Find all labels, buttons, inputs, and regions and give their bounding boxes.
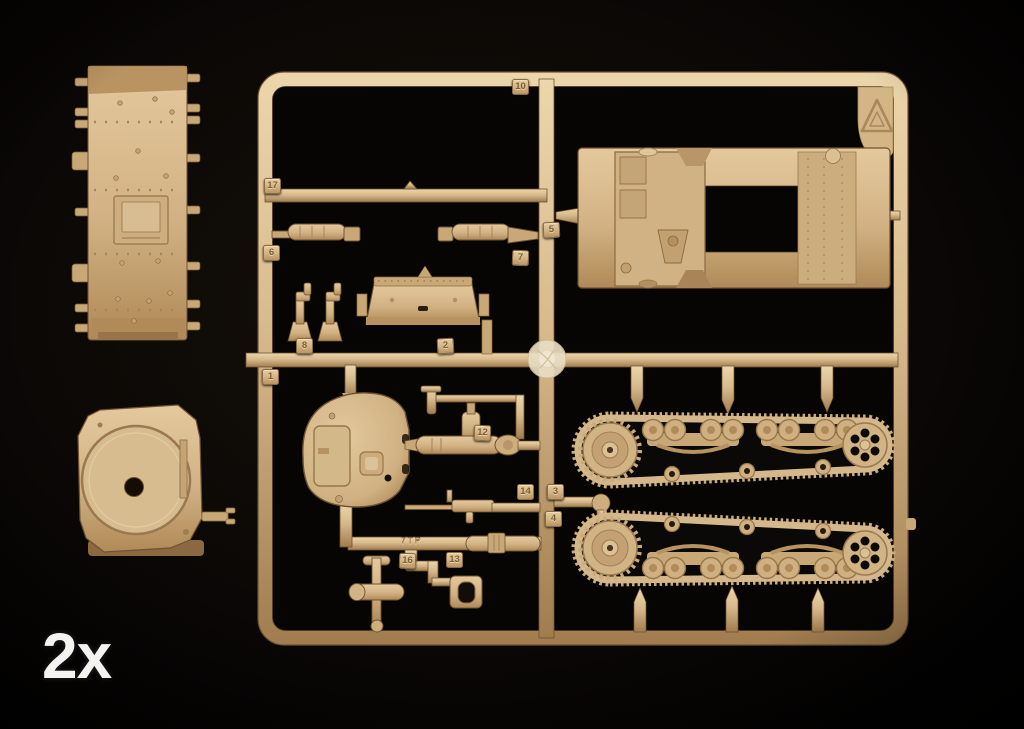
- part-tag-12: 12: [474, 425, 492, 442]
- vignette: [0, 0, 1024, 729]
- part-tag-13: 13: [446, 552, 463, 568]
- part-tag-1: 1: [262, 369, 279, 385]
- part-tag-7: 7: [512, 250, 530, 267]
- part-tag-5: 5: [543, 222, 561, 239]
- molded-kit-text: 7TP: [401, 536, 422, 546]
- quantity-label: 2x: [42, 626, 111, 687]
- part-tag-4: 4: [545, 511, 562, 527]
- part-tag-16: 16: [399, 553, 417, 570]
- part-tag-10: 10: [512, 79, 529, 95]
- sprue-artwork: [0, 0, 1024, 729]
- part-tag-3: 3: [547, 484, 564, 500]
- part-tag-14: 14: [517, 484, 534, 500]
- part-tag-17: 17: [264, 178, 281, 194]
- sprue-photo: 10 17 6 7 5 2 1 8 12 14 3 4 16 13 7TP 2x: [0, 0, 1024, 729]
- part-tag-6: 6: [263, 245, 280, 261]
- part-tag-2: 2: [437, 338, 455, 355]
- part-tag-8: 8: [296, 338, 313, 354]
